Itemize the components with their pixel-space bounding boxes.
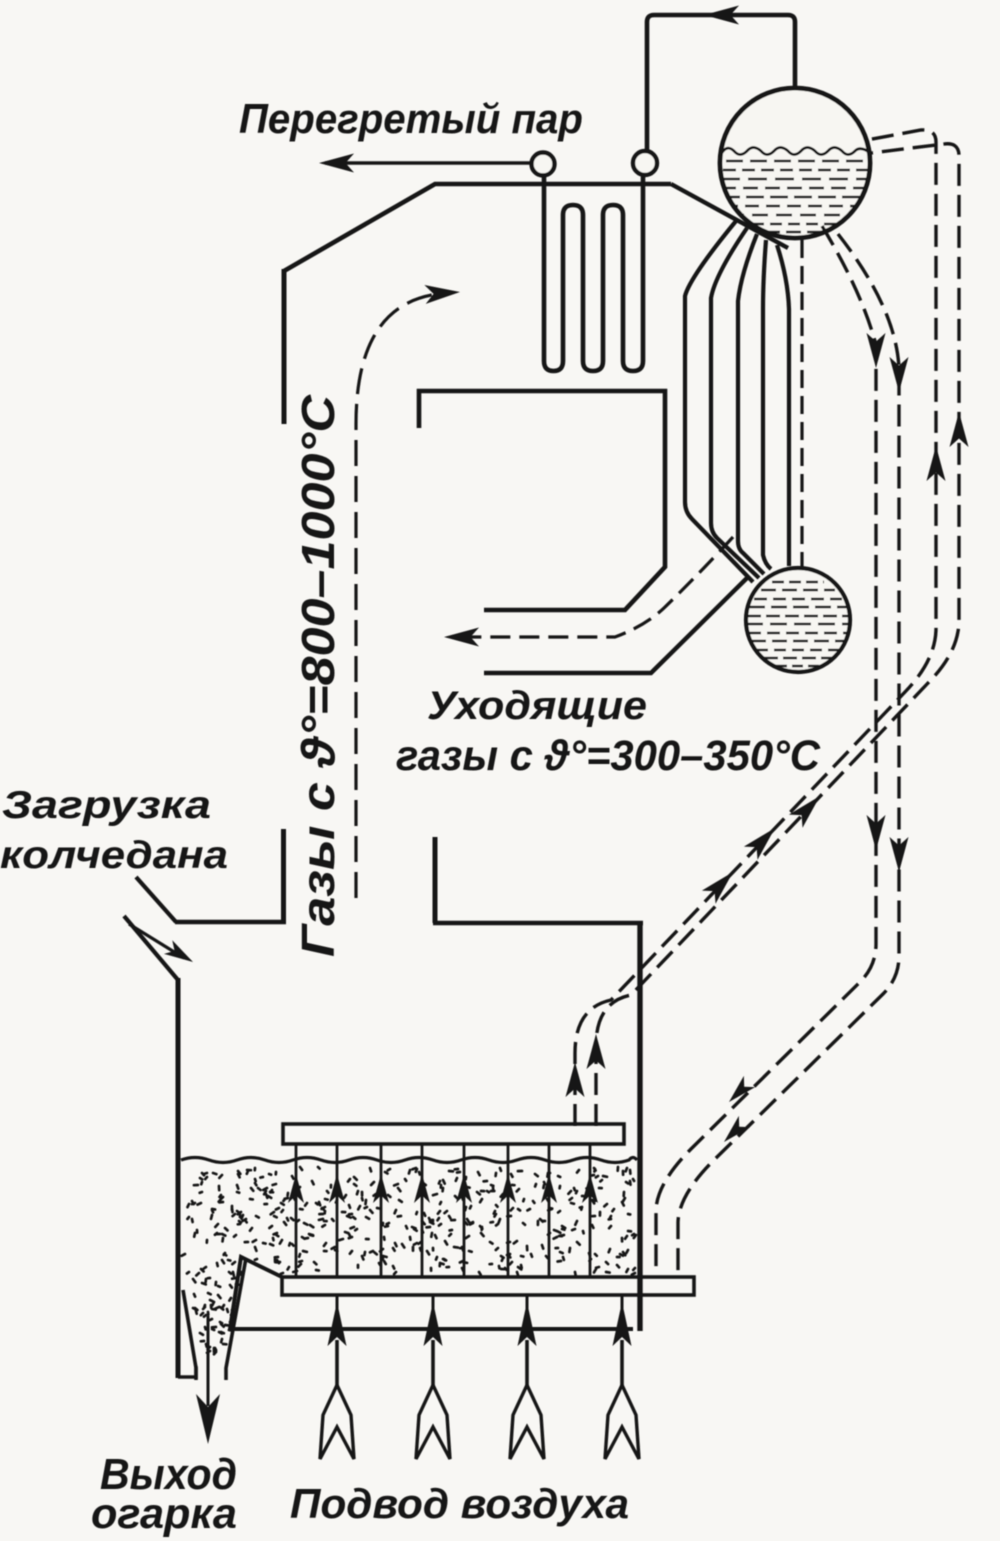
svg-text:Газы с ϑ°=800–1000°С: Газы с ϑ°=800–1000°С [292, 394, 344, 957]
svg-text:Перегретый пар: Перегретый пар [239, 95, 583, 142]
svg-text:Загрузка: Загрузка [2, 784, 211, 827]
svg-text:огарка: огарка [91, 1490, 237, 1538]
svg-text:Уходящие: Уходящие [427, 684, 647, 728]
svg-text:Подвод воздуха: Подвод воздуха [290, 1480, 629, 1527]
svg-text:колчедана: колчедана [0, 834, 228, 877]
svg-text:газы с ϑ°=300–350°С: газы с ϑ°=300–350°С [396, 732, 821, 780]
